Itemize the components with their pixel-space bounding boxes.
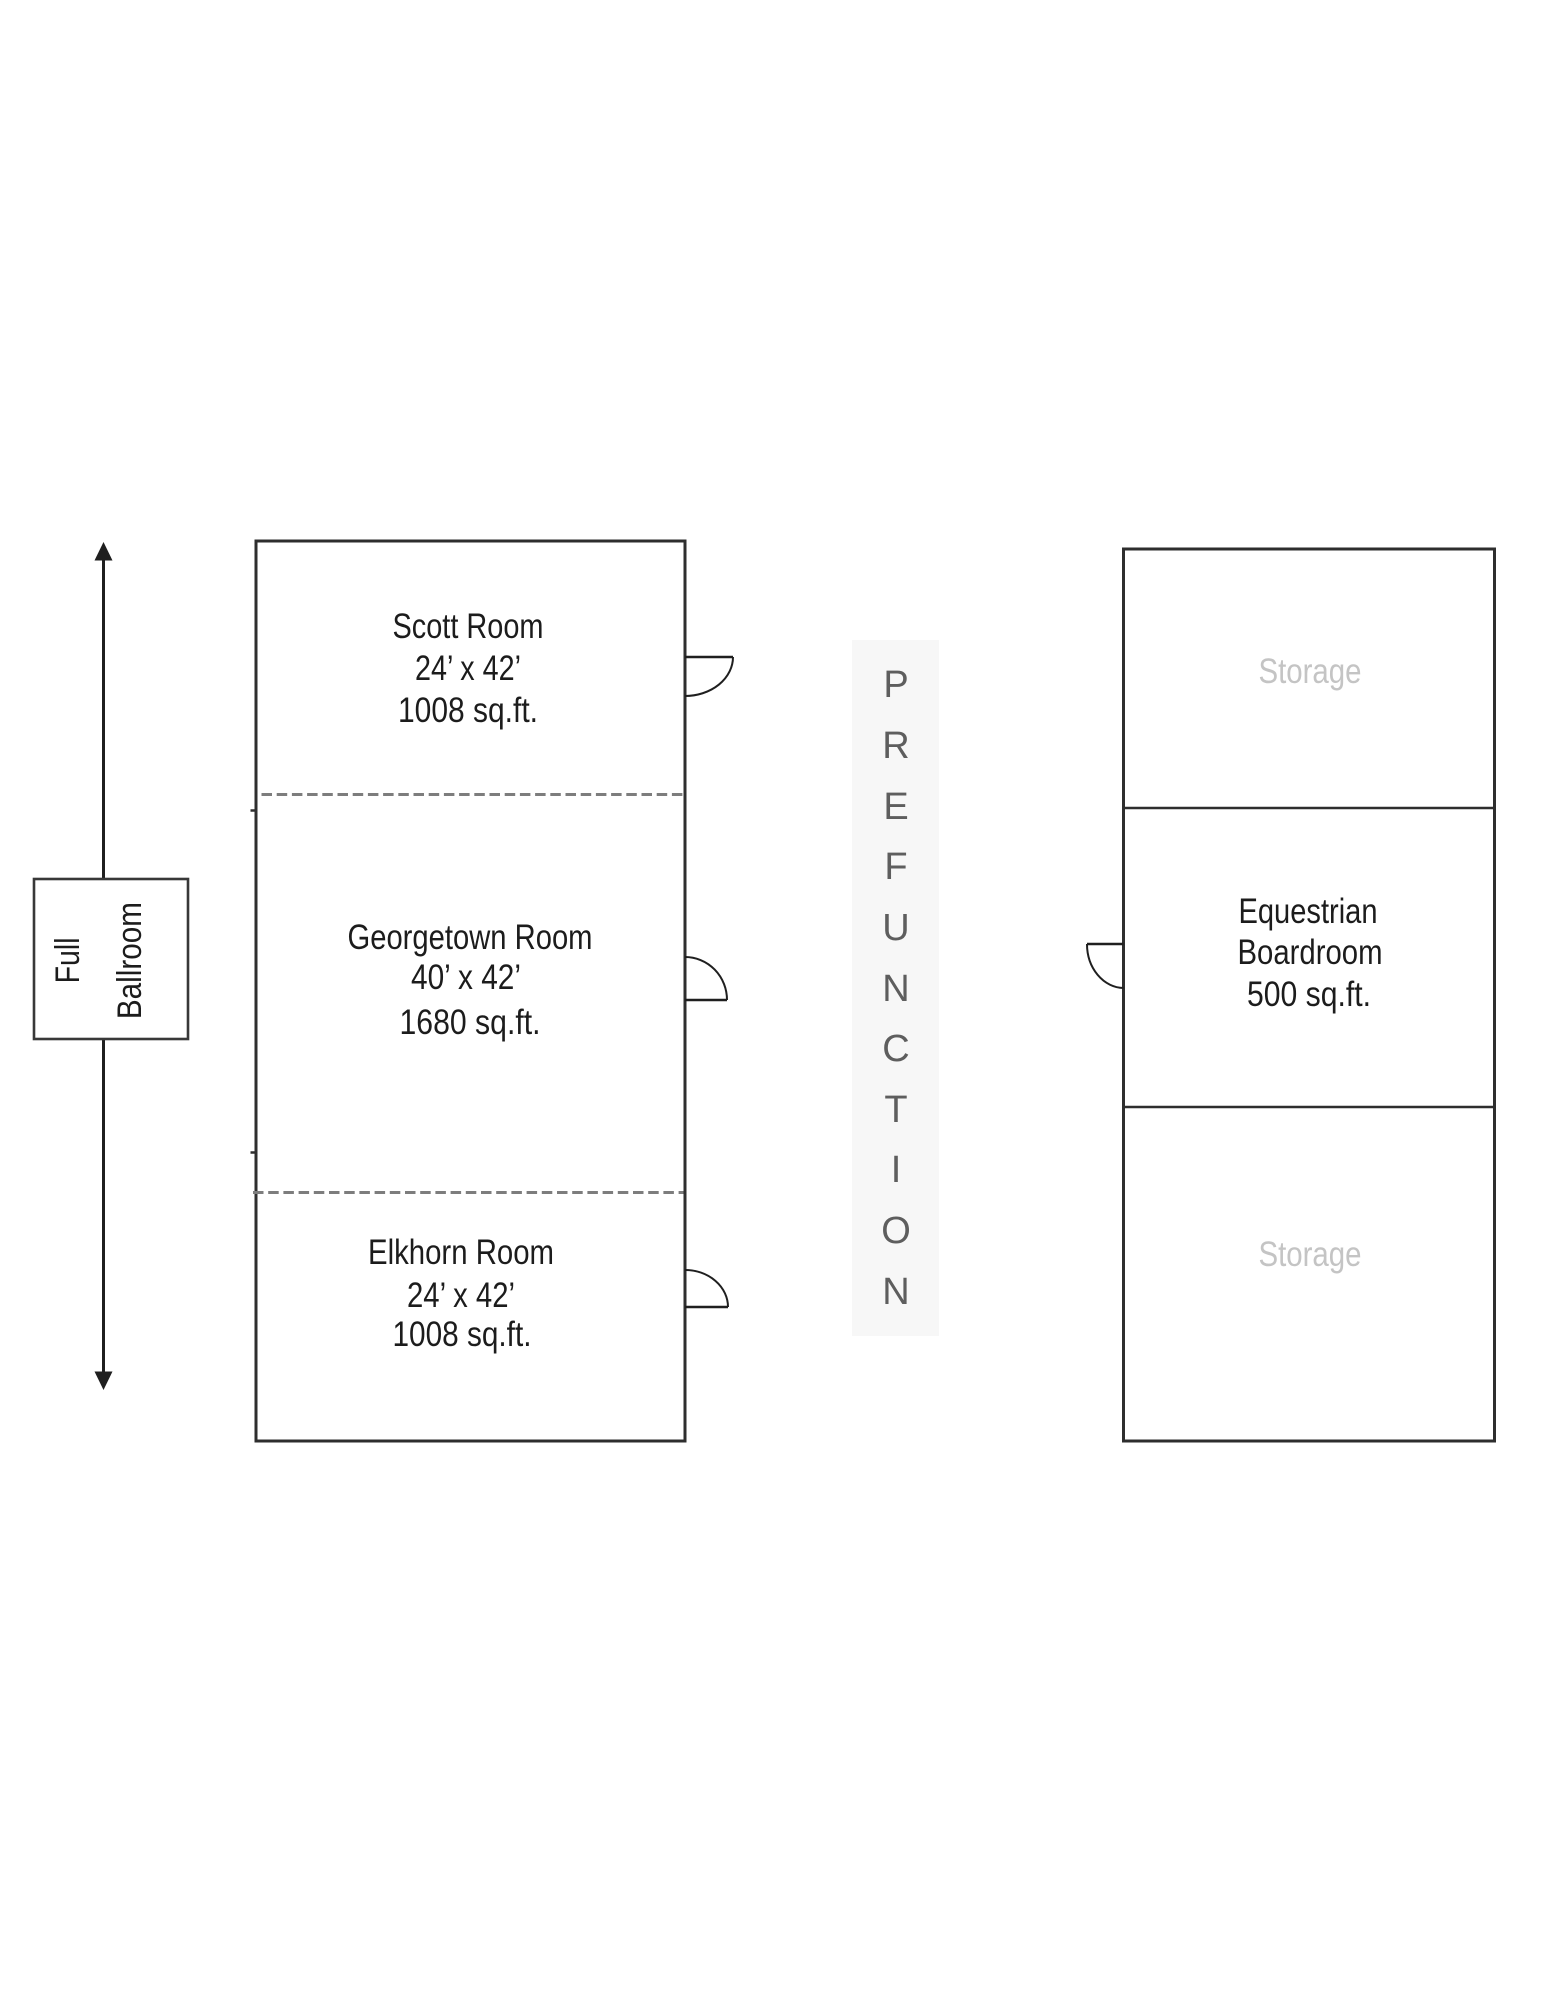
svg-text:C: C xyxy=(882,1028,909,1070)
svg-text:1008 sq.ft.: 1008 sq.ft. xyxy=(393,1315,532,1354)
svg-text:Equestrian: Equestrian xyxy=(1239,892,1378,931)
svg-text:Full: Full xyxy=(49,937,87,983)
svg-text:Ballroom: Ballroom xyxy=(111,902,149,1019)
svg-text:U: U xyxy=(882,907,909,949)
svg-text:Boardroom: Boardroom xyxy=(1238,933,1383,972)
svg-text:E: E xyxy=(883,786,908,828)
svg-text:F: F xyxy=(884,846,907,888)
svg-text:1680 sq.ft.: 1680 sq.ft. xyxy=(400,1003,541,1042)
svg-text:N: N xyxy=(882,1271,909,1313)
svg-text:Elkhorn Room: Elkhorn Room xyxy=(368,1233,554,1272)
svg-text:24’ x 42’: 24’ x 42’ xyxy=(407,1276,515,1315)
svg-text:Scott Room: Scott Room xyxy=(393,607,544,646)
svg-text:24’ x 42’: 24’ x 42’ xyxy=(415,649,521,688)
svg-text:T: T xyxy=(884,1089,907,1131)
svg-text:500 sq.ft.: 500 sq.ft. xyxy=(1247,975,1371,1014)
svg-text:Georgetown Room: Georgetown Room xyxy=(348,918,593,957)
svg-text:I: I xyxy=(891,1149,902,1191)
svg-text:1008 sq.ft.: 1008 sq.ft. xyxy=(398,691,538,730)
svg-text:N: N xyxy=(882,968,909,1010)
svg-text:40’ x 42’: 40’ x 42’ xyxy=(411,958,521,997)
svg-text:Storage: Storage xyxy=(1259,1235,1362,1274)
svg-text:O: O xyxy=(881,1210,911,1252)
svg-text:R: R xyxy=(882,725,909,767)
svg-text:P: P xyxy=(883,664,908,706)
svg-text:Storage: Storage xyxy=(1259,652,1362,691)
